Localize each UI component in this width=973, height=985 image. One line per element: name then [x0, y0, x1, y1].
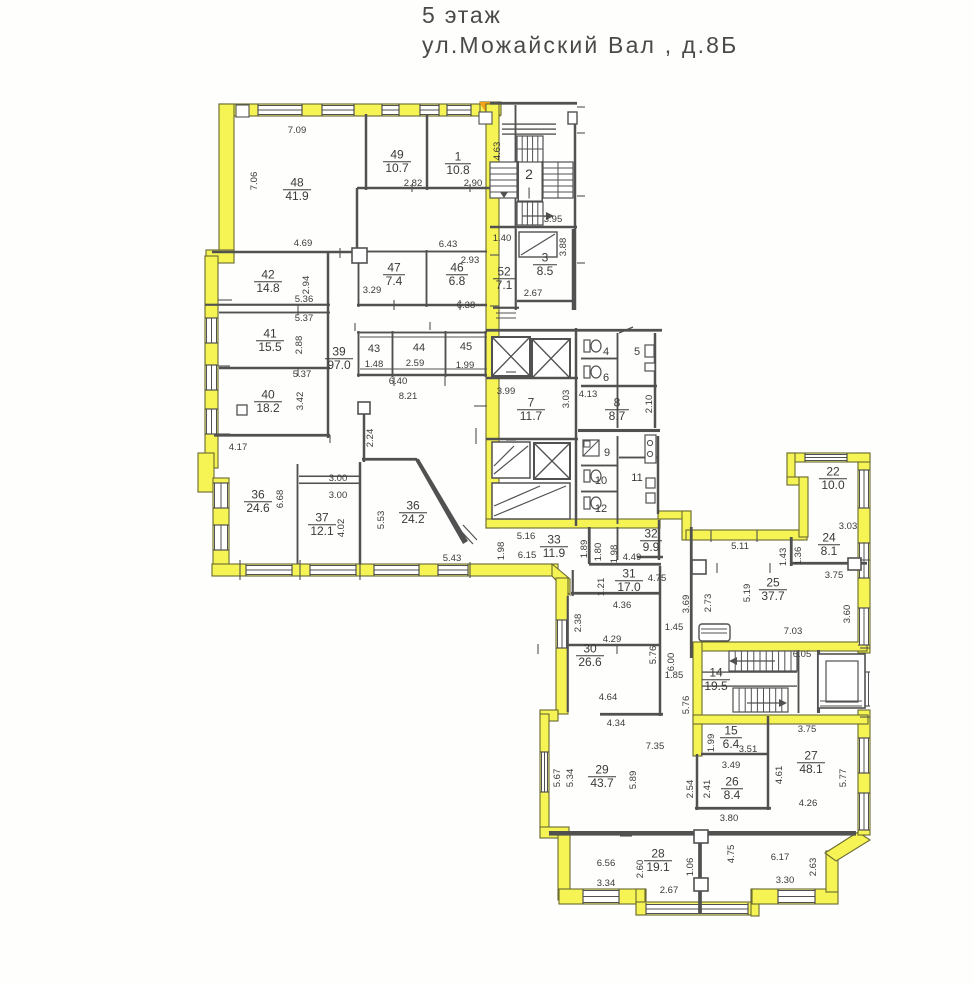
svg-text:48: 48 — [290, 176, 304, 190]
svg-text:3.60: 3.60 — [842, 605, 853, 624]
svg-text:3.00: 3.00 — [329, 473, 348, 484]
svg-text:2.63: 2.63 — [808, 858, 819, 877]
svg-text:10.8: 10.8 — [446, 163, 470, 177]
svg-text:1.98: 1.98 — [609, 545, 620, 564]
svg-text:1.40: 1.40 — [493, 233, 512, 244]
svg-text:3.88: 3.88 — [558, 238, 569, 257]
svg-text:12: 12 — [595, 503, 607, 515]
svg-text:42: 42 — [261, 268, 275, 282]
svg-text:3.03: 3.03 — [839, 521, 858, 532]
svg-text:1.99: 1.99 — [706, 734, 717, 753]
svg-text:52: 52 — [497, 265, 511, 279]
svg-text:33: 33 — [547, 533, 561, 547]
svg-text:4.34: 4.34 — [607, 718, 626, 729]
svg-text:6.4: 6.4 — [723, 737, 740, 751]
svg-text:4: 4 — [603, 346, 609, 358]
svg-text:5.67: 5.67 — [552, 769, 563, 788]
svg-text:7: 7 — [528, 396, 535, 410]
svg-text:5.43: 5.43 — [443, 553, 462, 564]
svg-text:3.42: 3.42 — [295, 392, 306, 411]
svg-text:1.21: 1.21 — [596, 578, 607, 597]
svg-text:9.9: 9.9 — [643, 540, 660, 554]
svg-text:1.98: 1.98 — [496, 542, 507, 561]
svg-text:37.7: 37.7 — [761, 589, 785, 603]
svg-text:2.88: 2.88 — [294, 336, 305, 355]
svg-text:29: 29 — [595, 763, 609, 777]
svg-text:4.02: 4.02 — [336, 519, 347, 538]
svg-text:7.4: 7.4 — [386, 274, 403, 288]
svg-text:6.05: 6.05 — [793, 649, 812, 660]
svg-text:28: 28 — [651, 847, 665, 861]
svg-text:4.75: 4.75 — [726, 845, 737, 864]
svg-text:36: 36 — [406, 499, 420, 513]
svg-text:1: 1 — [455, 150, 462, 164]
svg-text:4.17: 4.17 — [229, 442, 248, 453]
svg-text:11: 11 — [631, 472, 642, 484]
svg-text:2: 2 — [525, 166, 533, 182]
svg-text:5 этаж: 5 этаж — [422, 2, 502, 28]
svg-text:5.34: 5.34 — [565, 769, 576, 788]
svg-text:8: 8 — [614, 396, 621, 410]
svg-text:1.06: 1.06 — [685, 858, 696, 877]
svg-text:2.93: 2.93 — [461, 255, 480, 266]
svg-text:9: 9 — [604, 447, 610, 459]
svg-text:3.51: 3.51 — [739, 744, 758, 755]
svg-text:7.03: 7.03 — [784, 626, 803, 637]
svg-text:1.43: 1.43 — [778, 548, 789, 567]
svg-text:6.17: 6.17 — [771, 852, 790, 863]
svg-text:5.53: 5.53 — [376, 511, 387, 530]
svg-text:3.00: 3.00 — [329, 490, 348, 501]
svg-text:5.36: 5.36 — [295, 294, 314, 305]
svg-text:4.13: 4.13 — [579, 389, 598, 400]
svg-text:45: 45 — [460, 341, 472, 353]
svg-text:49: 49 — [390, 148, 404, 162]
svg-text:5.76: 5.76 — [681, 696, 692, 715]
svg-text:44: 44 — [413, 342, 425, 354]
svg-text:24: 24 — [822, 531, 836, 545]
svg-text:1.48: 1.48 — [365, 359, 384, 370]
svg-text:15: 15 — [724, 724, 738, 738]
svg-text:8.7: 8.7 — [609, 409, 626, 423]
svg-text:5.16: 5.16 — [517, 531, 536, 542]
svg-text:6.15: 6.15 — [518, 550, 537, 561]
svg-text:3.99: 3.99 — [497, 386, 516, 397]
svg-text:3.69: 3.69 — [681, 595, 692, 614]
svg-text:2.41: 2.41 — [702, 780, 713, 799]
svg-text:32: 32 — [644, 527, 658, 541]
svg-text:2.67: 2.67 — [660, 885, 679, 896]
svg-text:3.75: 3.75 — [798, 724, 817, 735]
svg-text:30: 30 — [583, 642, 597, 656]
svg-text:2.38: 2.38 — [573, 614, 584, 633]
svg-text:10.7: 10.7 — [385, 161, 409, 175]
svg-text:5.11: 5.11 — [731, 541, 749, 552]
svg-text:4.64: 4.64 — [599, 692, 618, 703]
svg-text:11.7: 11.7 — [520, 409, 543, 423]
svg-text:19.1: 19.1 — [646, 860, 670, 874]
svg-text:7.06: 7.06 — [249, 172, 260, 191]
svg-text:6: 6 — [603, 372, 609, 384]
svg-text:14: 14 — [709, 666, 723, 680]
svg-text:4.26: 4.26 — [799, 798, 818, 809]
svg-text:1.45: 1.45 — [665, 622, 684, 633]
svg-text:26.6: 26.6 — [578, 655, 602, 669]
svg-text:6.56: 6.56 — [597, 858, 616, 869]
svg-text:17.0: 17.0 — [617, 580, 641, 594]
svg-text:3.29: 3.29 — [363, 285, 382, 296]
svg-text:19.5: 19.5 — [704, 679, 728, 693]
svg-text:1.80: 1.80 — [593, 543, 604, 562]
svg-text:48.1: 48.1 — [799, 762, 823, 776]
svg-text:1.36: 1.36 — [793, 547, 804, 566]
svg-text:3.03: 3.03 — [561, 390, 572, 409]
svg-text:3.49: 3.49 — [722, 760, 741, 771]
svg-text:1.89: 1.89 — [579, 540, 590, 559]
svg-text:|: | — [527, 185, 530, 199]
svg-text:2.82: 2.82 — [404, 178, 423, 189]
svg-text:3.80: 3.80 — [720, 813, 739, 824]
svg-text:4.63: 4.63 — [492, 142, 503, 161]
svg-text:8.4: 8.4 — [724, 788, 741, 802]
svg-text:26: 26 — [725, 775, 739, 789]
svg-text:3.30: 3.30 — [776, 875, 795, 886]
svg-text:2.60: 2.60 — [635, 860, 646, 879]
svg-text:31: 31 — [622, 567, 636, 581]
svg-text:3.75: 3.75 — [825, 570, 844, 581]
svg-text:1.99: 1.99 — [456, 360, 475, 371]
svg-text:39: 39 — [332, 345, 346, 359]
svg-text:4.69: 4.69 — [294, 238, 313, 249]
svg-text:2.94: 2.94 — [301, 276, 312, 295]
svg-text:40: 40 — [261, 388, 275, 402]
svg-text:47: 47 — [387, 261, 401, 275]
svg-text:24.2: 24.2 — [401, 512, 425, 526]
svg-text:5.37: 5.37 — [293, 369, 312, 380]
svg-text:6.8: 6.8 — [449, 274, 466, 288]
svg-text:10.0: 10.0 — [821, 478, 845, 492]
svg-text:41: 41 — [263, 327, 277, 341]
svg-text:7.35: 7.35 — [646, 741, 665, 752]
svg-text:8.5: 8.5 — [537, 264, 554, 278]
svg-text:5.76: 5.76 — [648, 646, 659, 665]
svg-text:4.36: 4.36 — [613, 600, 632, 611]
svg-text:8.21: 8.21 — [399, 391, 418, 402]
svg-text:6.43: 6.43 — [439, 239, 458, 250]
svg-text:7.1: 7.1 — [496, 278, 513, 292]
svg-text:2.73: 2.73 — [703, 594, 714, 613]
svg-text:2.10: 2.10 — [644, 395, 655, 414]
svg-text:97.0: 97.0 — [327, 358, 351, 372]
svg-text:27: 27 — [804, 749, 818, 763]
svg-text:4.49: 4.49 — [623, 552, 642, 563]
svg-text:3.34: 3.34 — [597, 878, 616, 889]
svg-text:15.5: 15.5 — [258, 340, 282, 354]
svg-text:2.59: 2.59 — [406, 358, 425, 369]
svg-text:2.54: 2.54 — [685, 780, 696, 799]
svg-text:6.40: 6.40 — [389, 376, 408, 387]
svg-text:6.68: 6.68 — [275, 490, 286, 509]
svg-text:18.2: 18.2 — [256, 401, 280, 415]
svg-text:14.8: 14.8 — [256, 281, 280, 295]
svg-text:24.6: 24.6 — [246, 501, 270, 515]
svg-text:11.9: 11.9 — [543, 546, 566, 560]
svg-text:5: 5 — [634, 346, 640, 358]
svg-text:4.29: 4.29 — [603, 634, 622, 645]
svg-text:10: 10 — [595, 475, 607, 487]
svg-text:5.89: 5.89 — [628, 771, 639, 790]
svg-text:8.1: 8.1 — [821, 544, 838, 558]
svg-text:43: 43 — [368, 343, 380, 355]
svg-text:2.24: 2.24 — [365, 429, 376, 448]
svg-text:4.75: 4.75 — [648, 573, 667, 584]
svg-text:6.00: 6.00 — [666, 653, 677, 672]
svg-text:5.19: 5.19 — [742, 584, 753, 603]
svg-text:43.7: 43.7 — [590, 776, 614, 790]
svg-text:ул.Можайский Вал , д.8Б: ул.Можайский Вал , д.8Б — [422, 32, 738, 58]
svg-text:12.1: 12.1 — [310, 524, 334, 538]
svg-text:3: 3 — [542, 251, 549, 265]
svg-text:25: 25 — [766, 576, 780, 590]
svg-text:4.61: 4.61 — [774, 766, 785, 785]
svg-text:22: 22 — [826, 465, 840, 479]
svg-text:37: 37 — [315, 511, 329, 525]
svg-text:2.90: 2.90 — [464, 178, 483, 189]
svg-text:7.09: 7.09 — [288, 125, 307, 136]
svg-text:3.95: 3.95 — [544, 214, 563, 225]
svg-text:41.9: 41.9 — [285, 189, 309, 203]
svg-text:2.67: 2.67 — [524, 288, 543, 299]
svg-text:36: 36 — [251, 488, 265, 502]
svg-text:5.77: 5.77 — [838, 769, 849, 788]
